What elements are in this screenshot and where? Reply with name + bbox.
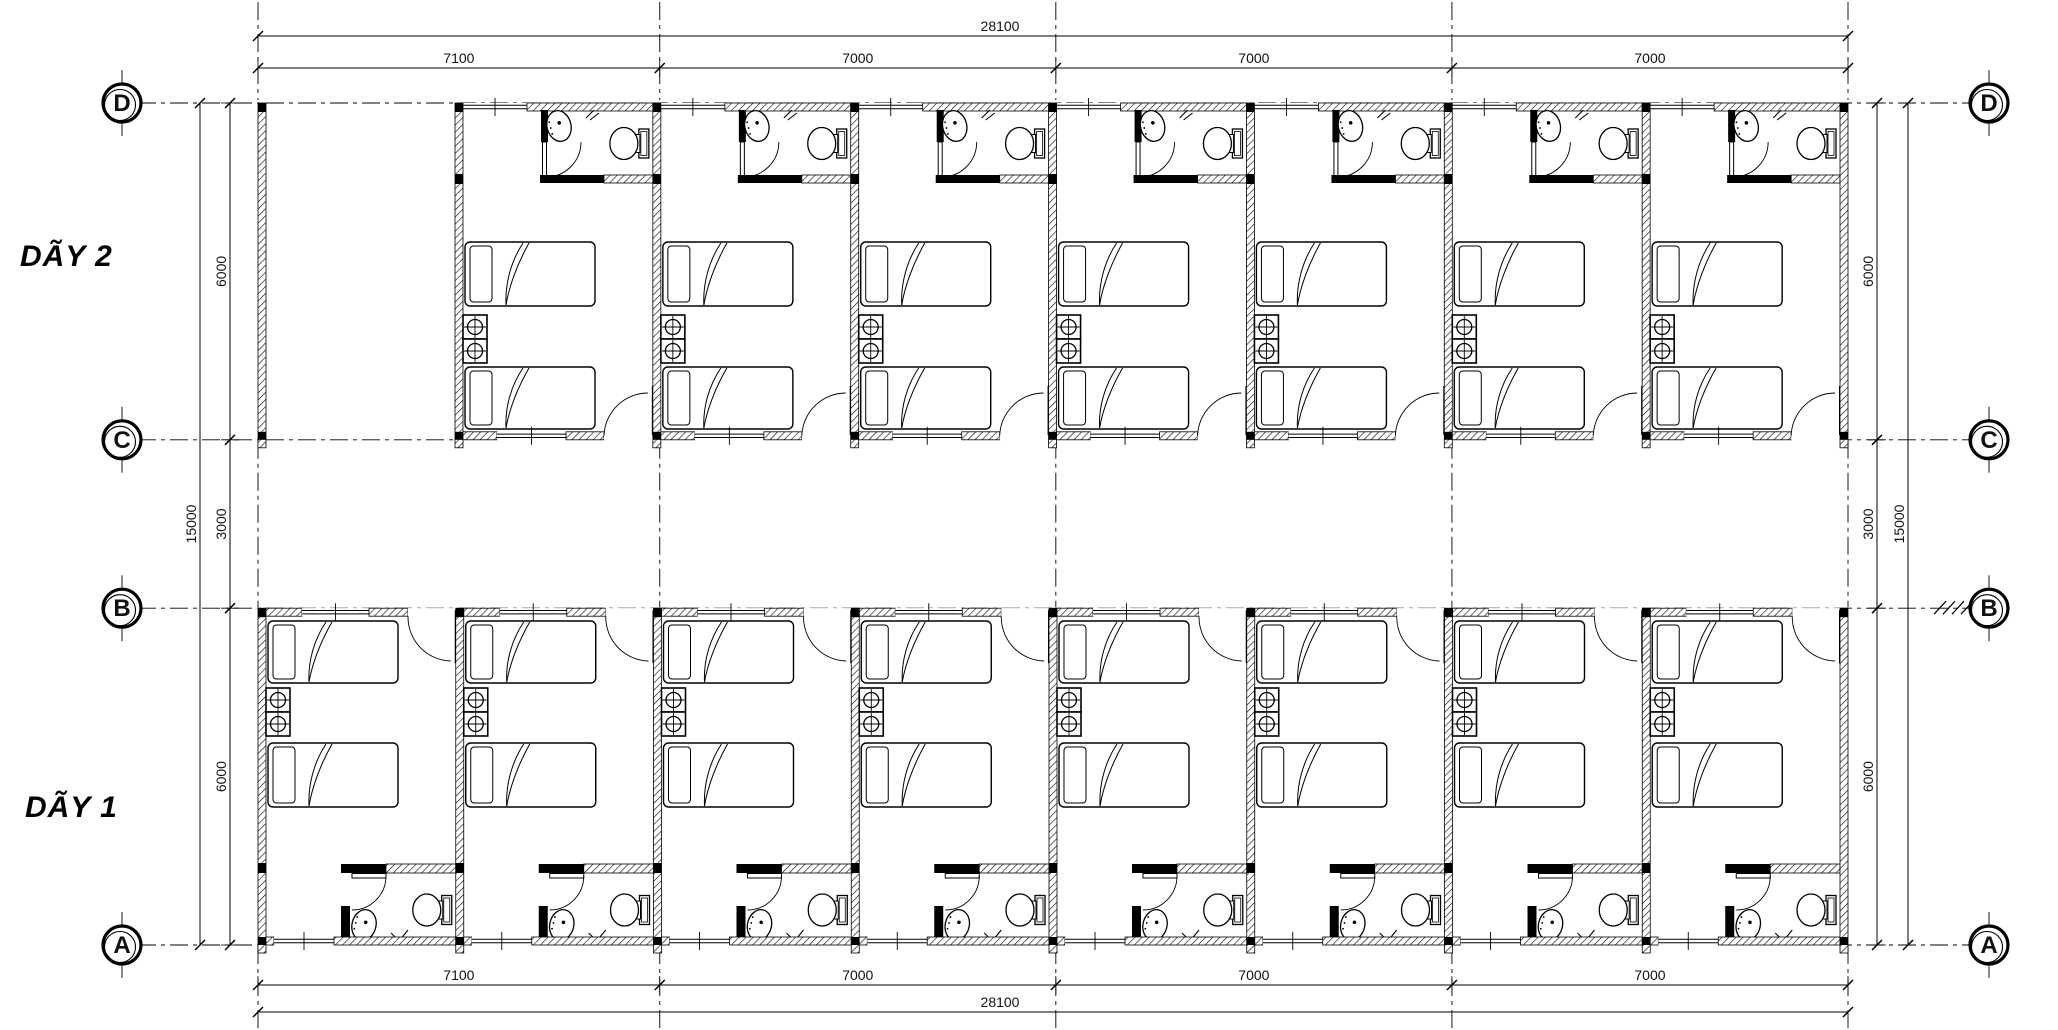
wall-post [1840,432,1848,440]
dimension-total-vertical: 15000 [1891,98,1913,950]
door-leaf [1334,142,1338,177]
bathroom-wall [1330,864,1375,873]
toilet-icon [1797,128,1836,160]
wall [662,937,670,945]
room-unit-day2 [851,98,1057,448]
grid-letter: B [113,595,130,622]
wall [1556,608,1595,616]
bathroom-wall [1573,864,1643,873]
row-label-day2: DÃY 2 [20,240,113,274]
wall [1650,937,1658,945]
door-leaf [352,874,386,879]
wall [1358,608,1397,616]
wall [1057,608,1093,616]
wall [1318,103,1444,111]
wall [1753,608,1792,616]
stove-icon [1650,688,1674,736]
bathroom-wall [386,864,456,873]
wall-post [1642,174,1650,184]
bed-icon [1257,743,1387,807]
grid-letter: B [1980,595,1997,622]
wall [1650,608,1686,616]
bathroom-wall [1177,864,1247,873]
room-unit-day2 [1444,98,1650,448]
bathroom-wall [1528,864,1573,873]
bathroom-wall [1529,175,1593,183]
bed-icon [1454,242,1584,306]
wall-post [851,103,859,112]
bathroom-wall [539,864,584,873]
bathroom-wall [1134,175,1198,183]
door-leaf [543,142,547,177]
wall-post [654,863,662,873]
grid-letter: C [1980,427,1997,454]
wall [1642,103,1650,448]
wall-post [1049,608,1057,617]
wall-post [1247,937,1255,945]
wall [1247,608,1255,953]
wall-post [1049,103,1057,112]
wall-post [1642,863,1650,873]
bed-icon [663,242,793,306]
wall-post [456,863,464,873]
wall-post [258,608,266,617]
bed-icon [1652,242,1782,306]
bed-icon [861,367,991,429]
wall [859,432,893,440]
wall-post [1246,103,1254,112]
wall [1753,432,1791,440]
wall [1160,432,1198,440]
toilet-icon [1599,894,1638,926]
grid-letter: D [113,90,130,117]
wall [1246,103,1254,448]
wall [1357,432,1395,440]
bathroom-wall [341,864,386,873]
wall-post [653,432,661,440]
wall-post [851,174,859,184]
wall-post [455,432,463,440]
wall-post [1642,937,1650,945]
bed-icon [1652,621,1782,683]
door-leaf [945,874,979,879]
stove-icon [1255,688,1279,736]
stove-icon [859,315,883,363]
wall [1254,432,1288,440]
dim-label: 7000 [842,967,873,983]
dimension-total-vertical: 15000 [183,98,205,950]
break-hash-marks [1934,601,1973,614]
wall [1057,432,1091,440]
stove-icon [1452,315,1476,363]
grid-letter: C [113,427,130,454]
bathroom-wall [936,175,1000,183]
wall [962,432,1000,440]
dimension-chain-horizontal: 7100700070007000 [253,50,1853,77]
bathroom-wall [782,864,852,873]
grid-letter: A [1980,932,1997,959]
wall [334,937,456,945]
bathroom-wall [934,864,979,873]
wall-post [653,103,661,112]
toilet-icon [1203,128,1242,160]
wall-post [258,432,266,440]
grid-letter: D [1980,90,1997,117]
wall [567,608,606,616]
bathroom-wall [1198,175,1247,183]
bed-icon [1455,621,1585,683]
toilet-icon [808,128,847,160]
wall-post [851,937,859,945]
wall-post [1247,863,1255,873]
wall [1057,937,1065,945]
dimension-total-horizontal: 28100 [253,18,1853,41]
dimension-chain-vertical: 600030006000 [213,98,239,950]
open-bay [258,103,266,448]
toilet-icon [611,894,650,926]
room-unit-day2 [455,98,661,448]
door-leaf [1341,874,1375,879]
wall-post [1049,174,1057,184]
toilet-icon [808,894,847,926]
wall [266,937,274,945]
wall [859,937,867,945]
dimension-total-horizontal: 28100 [253,994,1853,1017]
toilet-icon [1204,894,1243,926]
grid-bubble-B-left: B [103,575,141,641]
wall-post [851,608,859,617]
dim-label: 7000 [1634,967,1665,983]
dimension-chain-horizontal: 7100700070007000 [253,967,1853,994]
bed-icon [1256,367,1386,429]
building-layer [258,98,1848,953]
bathroom-wall [737,864,782,873]
floor-plan-svg: 2810071007000700070007100700070007000281… [0,0,2058,1030]
bed-icon [1454,367,1584,429]
bed-icon [1059,367,1189,429]
grid-bubble-D-left: D [103,70,141,136]
bed-icon [268,743,398,807]
toilet-icon [1006,128,1045,160]
wall-post [1246,432,1254,440]
dim-label: 3000 [1860,508,1876,539]
bed-icon [1256,242,1386,306]
room-unit-day1 [1445,603,1651,953]
bed-icon [465,367,595,429]
toilet-icon [1402,894,1441,926]
wall [258,608,266,953]
room-unit-day2 [1642,98,1848,448]
grid-bubble-C-left: C [103,407,141,473]
wall [851,608,859,953]
door-leaf [1736,874,1770,879]
door-leaf [1136,142,1140,177]
door-leaf [748,874,782,879]
dim-label: 6000 [213,256,229,287]
wall [1714,103,1840,111]
wall [662,608,698,616]
stove-icon [1057,315,1081,363]
wall-post [851,863,859,873]
wall [1642,608,1650,953]
wall-post [1247,608,1255,617]
bed-icon [1455,743,1585,807]
door-leaf [1532,142,1536,177]
stove-icon [1057,688,1081,736]
wall [1650,432,1684,440]
bathroom-wall [1395,175,1444,183]
wall-post [1049,432,1057,440]
wall [455,103,463,448]
stove-icon [662,688,686,736]
wall [1516,103,1642,111]
grid-bubble-C-right: C [1970,407,2008,473]
toilet-icon [413,894,452,926]
wall-post [1840,103,1848,112]
wall [654,608,662,953]
wall [1453,608,1489,616]
wall-post [1840,937,1848,945]
wall [653,103,661,448]
bed-icon [1652,367,1782,429]
stove-icon [1453,688,1477,736]
door-leaf [1143,874,1177,879]
dim-label: 7100 [443,967,474,983]
bathroom-wall [604,175,653,183]
wall [464,937,472,945]
wall [962,608,1001,616]
wall-post [1444,103,1452,112]
wall [527,103,653,111]
dim-label: 6000 [1860,256,1876,287]
stove-icon [859,688,883,736]
wall-post [258,937,266,945]
bathroom-wall [738,175,802,183]
toilet-icon [1599,128,1638,160]
grid-letter: A [113,932,130,959]
room-unit-day1 [654,603,860,953]
bathroom-wall [1000,175,1049,183]
wall-post [1642,432,1650,440]
stove-icon [266,688,290,736]
bed-icon [861,621,991,683]
dim-label: 7000 [1238,967,1269,983]
room-unit-day1 [1247,603,1453,953]
wall [859,608,895,616]
wall [532,937,654,945]
bathroom-wall [584,864,654,873]
wall [369,608,408,616]
room-unit-day1 [1049,603,1255,953]
wall-post [1444,432,1452,440]
wall-post [1049,937,1057,945]
wall [661,432,695,440]
bathroom-wall [1331,175,1395,183]
dim-label: 15000 [1891,504,1907,543]
dim-label: 7000 [1238,50,1269,66]
bathroom-wall [1725,864,1770,873]
bed-icon [466,743,596,807]
room-unit-day2 [653,98,859,448]
floor-plan-canvas: 2810071007000700070007100700070007000281… [0,0,2058,1030]
wall [923,103,1049,111]
wall [1521,937,1643,945]
wall [851,103,859,448]
wall-post [653,174,661,184]
room-unit-day1 [1642,603,1848,953]
wall [1323,937,1445,945]
room-unit-day1 [456,603,662,953]
wall-post [1445,937,1453,945]
wall [1444,103,1452,448]
wall [1049,103,1057,448]
room-unit-day2 [1246,98,1452,448]
wall [1255,608,1291,616]
wall [1049,608,1057,953]
bathroom-wall [1770,864,1840,873]
wall-post [455,174,463,184]
row-label-day1: DÃY 1 [25,791,118,825]
bathroom-wall [540,175,604,183]
wall [456,608,464,953]
bathroom-wall [1593,175,1642,183]
room-unit-day2 [1049,98,1255,448]
dim-label: 6000 [1860,761,1876,792]
wall [463,432,497,440]
bed-icon [1652,743,1782,807]
wall [464,608,500,616]
wall [927,937,1049,945]
wall [1453,937,1461,945]
wall [1160,608,1199,616]
wall-post [1642,103,1650,112]
dim-label: 7100 [443,50,474,66]
wall [764,432,802,440]
door-leaf [938,142,942,177]
bed-icon [466,621,596,683]
dim-label: 6000 [213,761,229,792]
toilet-icon [1401,128,1440,160]
wall-post [456,937,464,945]
bathroom-wall [802,175,851,183]
dimension-chain-vertical: 600030006000 [1860,98,1886,950]
wall-post [455,103,463,112]
wall [1121,103,1247,111]
bed-icon [664,743,794,807]
wall [725,103,851,111]
dim-label: 28100 [981,994,1020,1010]
grid-bubble-A-left: A [103,912,141,978]
stove-icon [661,315,685,363]
wall-post [1642,608,1650,617]
dim-label: 15000 [183,504,199,543]
dim-label: 7000 [842,50,873,66]
dim-label: 28100 [981,18,1020,34]
outer-wall [258,103,266,448]
toilet-icon [1797,894,1836,926]
outer-wall [1840,103,1848,448]
wall-post [1246,174,1254,184]
wall-post [1445,608,1453,617]
wall-post [1444,174,1452,184]
wall-post [654,937,662,945]
wall [730,937,852,945]
stove-icon [464,688,488,736]
room-unit-day1 [258,603,464,953]
room-unit-day1 [851,603,1057,953]
dim-label: 7000 [1634,50,1665,66]
bed-icon [664,621,794,683]
door-leaf [1730,142,1734,177]
bed-icon [268,621,398,683]
wall-post [654,608,662,617]
door-leaf [740,142,744,177]
wall [1255,937,1263,945]
toilet-icon [1006,894,1045,926]
bed-icon [861,743,991,807]
stove-icon [463,315,487,363]
stove-icon [1650,315,1674,363]
wall [566,432,604,440]
bathroom-wall [1727,175,1791,183]
wall-post [1049,863,1057,873]
wall [1452,432,1486,440]
door-leaf [1539,874,1573,879]
wall-post [1840,608,1848,617]
bathroom-wall [1132,864,1177,873]
wall-post [258,103,266,112]
wall [765,608,804,616]
toilet-icon [610,128,649,160]
bed-icon [663,367,793,429]
bathroom-wall [1375,864,1445,873]
bed-icon [861,242,991,306]
outer-wall [1840,608,1848,953]
wall-post [456,608,464,617]
wall [1445,608,1453,953]
bed-icon [1059,242,1189,306]
wall-post [1445,863,1453,873]
bathroom-wall [979,864,1049,873]
grid-bubble-D-right: D [1970,70,2008,136]
dim-label: 3000 [213,508,229,539]
wall [1125,937,1247,945]
wall [266,608,302,616]
wall [1718,937,1840,945]
door-leaf [550,874,584,879]
wall [1555,432,1593,440]
wall-post [258,863,266,873]
grid-bubble-B-right: B [1970,575,2008,641]
bed-icon [465,242,595,306]
bed-icon [1059,621,1189,683]
bed-icon [1059,743,1189,807]
stove-icon [1254,315,1278,363]
bed-icon [1257,621,1387,683]
bathroom-wall [1791,175,1840,183]
wall-post [851,432,859,440]
grid-bubble-A-right: A [1970,912,2008,978]
